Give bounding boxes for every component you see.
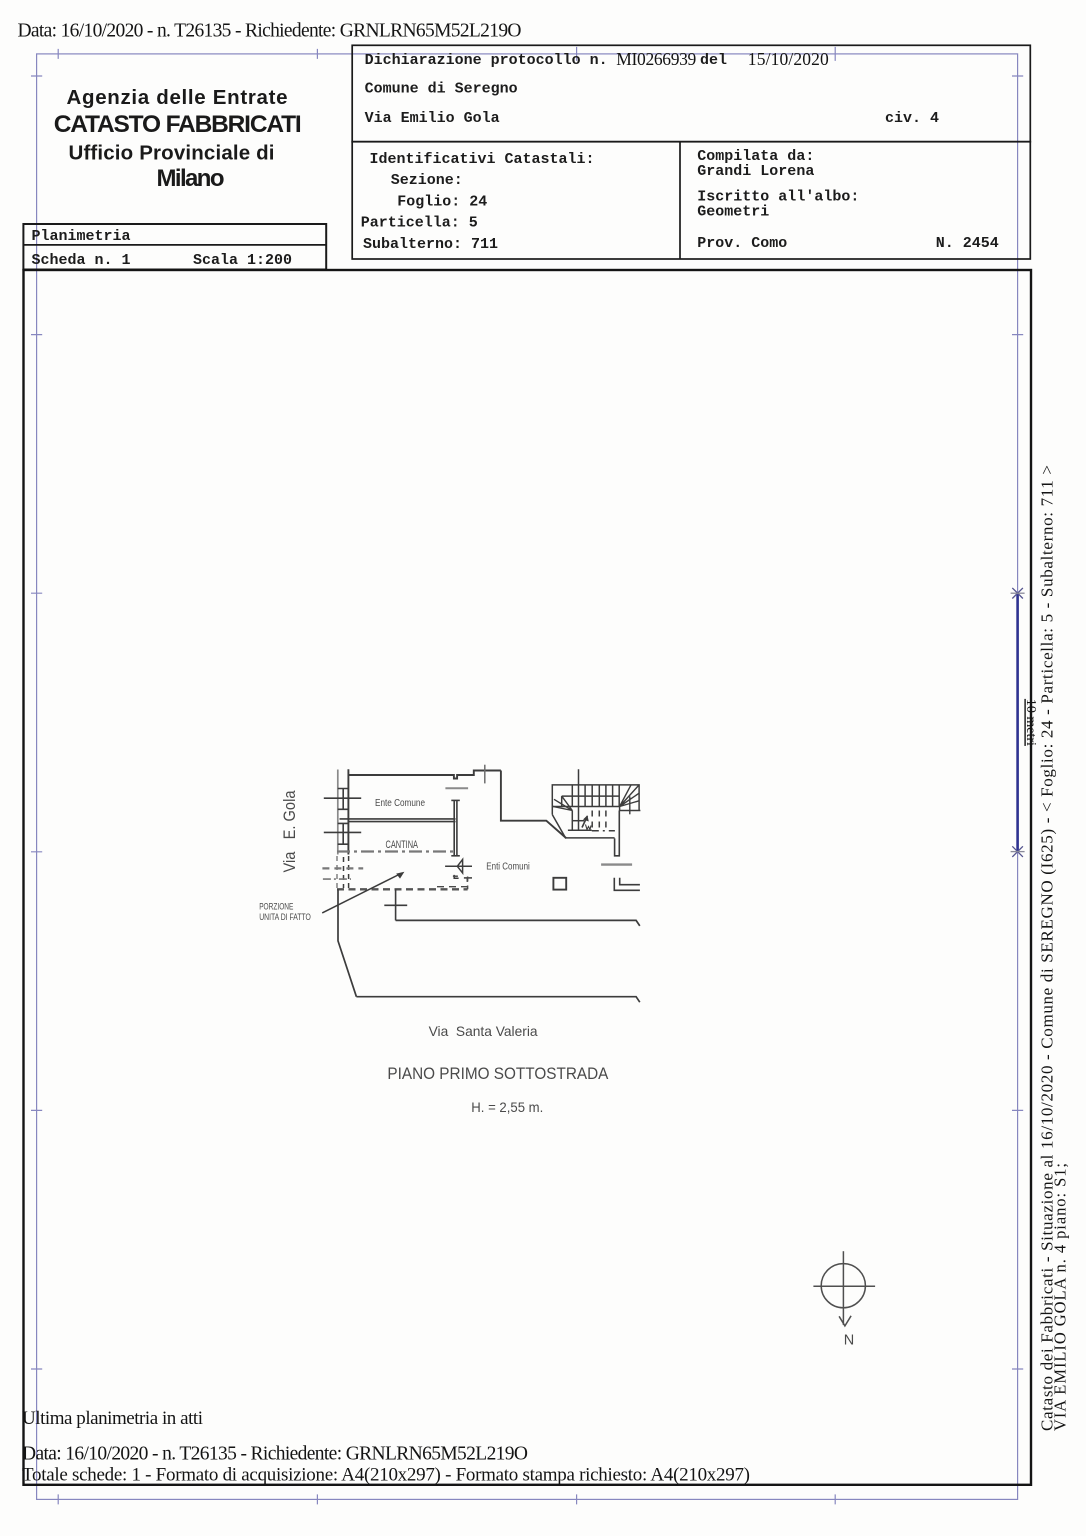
svg-text:Prov. Como: Prov. Como bbox=[697, 235, 787, 252]
svg-text:Comune di Seregno: Comune di Seregno bbox=[365, 81, 518, 98]
svg-text:Via E. Gola: Via E. Gola bbox=[280, 790, 299, 872]
svg-text:Via Santa Valeria: Via Santa Valeria bbox=[429, 1024, 538, 1039]
svg-text:Foglio: 24: Foglio: 24 bbox=[397, 194, 487, 211]
svg-text:MI0266939: MI0266939 bbox=[616, 49, 696, 69]
svg-text:Ente Comune: Ente Comune bbox=[375, 798, 425, 809]
svg-text:15/10/2020: 15/10/2020 bbox=[748, 49, 829, 69]
svg-text:Enti Comuni: Enti Comuni bbox=[486, 862, 530, 873]
svg-text:PIANO PRIMO SOTTOSTRADA: PIANO PRIMO SOTTOSTRADA bbox=[387, 1064, 609, 1083]
svg-text:Ufficio Provinciale di: Ufficio Provinciale di bbox=[69, 142, 275, 165]
svg-text:Identificativi Catastali:: Identificativi Catastali: bbox=[370, 151, 595, 168]
svg-text:Data: 16/10/2020 - n. T26135 -: Data: 16/10/2020 - n. T26135 - Richieden… bbox=[22, 1444, 528, 1465]
svg-text:N. 2454: N. 2454 bbox=[936, 235, 999, 252]
svg-text:Sezione:: Sezione: bbox=[391, 172, 463, 189]
svg-text:Totale schede: 1 - Formato di: Totale schede: 1 - Formato di acquisizio… bbox=[22, 1465, 750, 1486]
svg-text:Scala 1:200: Scala 1:200 bbox=[193, 252, 292, 269]
svg-text:del: del bbox=[700, 52, 727, 69]
svg-text:Grandi Lorena: Grandi Lorena bbox=[697, 163, 814, 180]
svg-text:Dichiarazione protocollo n.: Dichiarazione protocollo n. bbox=[365, 52, 608, 69]
svg-text:Data: 16/10/2020 - n. T26135 -: Data: 16/10/2020 - n. T26135 - Richieden… bbox=[18, 21, 522, 42]
svg-text:H. = 2,55 m.: H. = 2,55 m. bbox=[471, 1099, 543, 1115]
svg-text:Via Emilio Gola: Via Emilio Gola bbox=[365, 110, 500, 127]
svg-text:PORZIONE: PORZIONE bbox=[259, 902, 293, 912]
svg-text:Milano: Milano bbox=[157, 165, 225, 192]
svg-text:UNITA DI FATTO: UNITA DI FATTO bbox=[259, 912, 311, 922]
svg-text:Particella: 5: Particella: 5 bbox=[361, 215, 478, 232]
svg-text:Subalterno: 711: Subalterno: 711 bbox=[363, 236, 498, 253]
svg-text:Planimetria: Planimetria bbox=[32, 228, 131, 245]
svg-text:Ultima planimetria in atti: Ultima planimetria in atti bbox=[22, 1408, 203, 1429]
svg-text:VIA EMILIO GOLA n. 4 piano: S1: VIA EMILIO GOLA n. 4 piano: S1; bbox=[1051, 1163, 1070, 1431]
svg-text:CATASTO FABBRICATI: CATASTO FABBRICATI bbox=[54, 111, 302, 138]
svg-text:Scheda n. 1: Scheda n. 1 bbox=[32, 252, 131, 269]
svg-text:CANTINA: CANTINA bbox=[386, 839, 419, 851]
svg-text:N: N bbox=[844, 1333, 854, 1349]
svg-text:civ. 4: civ. 4 bbox=[885, 110, 939, 127]
svg-text:Geometri: Geometri bbox=[697, 204, 769, 221]
svg-text:Agenzia delle Entrate: Agenzia delle Entrate bbox=[67, 86, 288, 109]
